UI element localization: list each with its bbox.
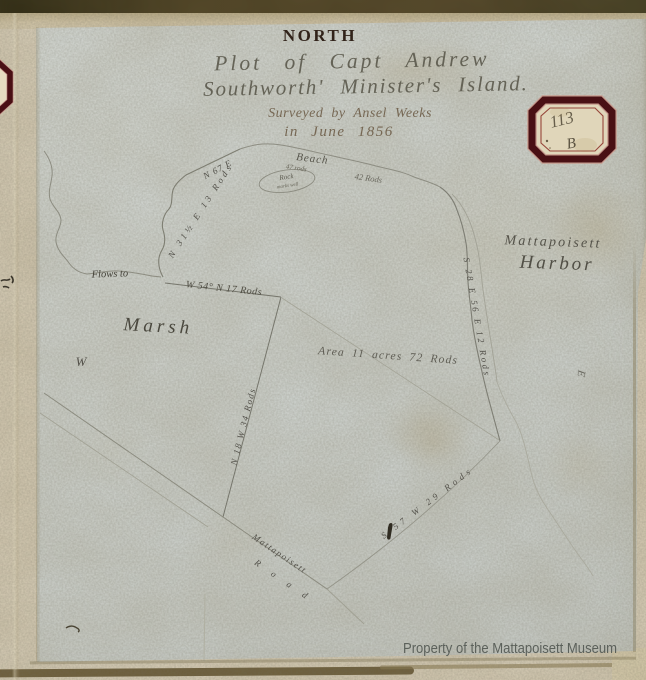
svg-text:Area 11 acres 72 Rods: Area 11 acres 72 Rods — [317, 345, 459, 367]
svg-text:Southworth' Minister's Islan: Southworth' Minister's Island. — [203, 71, 529, 101]
svg-text:Plot of Capt Andrew: Plot of Capt Andrew — [213, 47, 490, 76]
svg-text:W: W — [76, 354, 88, 369]
svg-text:E: E — [574, 368, 587, 378]
svg-text:Marsh: Marsh — [122, 314, 194, 339]
svg-text:in June 1856: in June 1856 — [284, 124, 393, 140]
svg-text:S 57 W 29 Rods: S 57 W 29 Rods — [379, 465, 475, 541]
svg-text:marks well: marks well — [277, 182, 300, 190]
svg-text:N 31½ E 13 Rods: N 31½ E 13 Rods — [165, 161, 235, 261]
svg-text:N 18 W 34 Rods: N 18 W 34 Rods — [228, 386, 257, 467]
svg-text:42 Rods: 42 Rods — [354, 171, 383, 185]
svg-text:W 54° N 17 Rods: W 54° N 17 Rods — [185, 279, 262, 298]
svg-text:NORTH: NORTH — [283, 26, 357, 45]
svg-text:Harbor: Harbor — [518, 252, 595, 276]
svg-text:Mattapoisett: Mattapoisett — [503, 233, 602, 251]
svg-text:Flows to: Flows to — [90, 268, 128, 280]
svg-text:S 28 E 56 E 12 Rods: S 28 E 56 E 12 Rods — [461, 257, 492, 378]
svg-text:Rock: Rock — [278, 172, 295, 182]
svg-text:Surveyed by Ansel Weeks: Surveyed by Ansel Weeks — [268, 106, 432, 121]
